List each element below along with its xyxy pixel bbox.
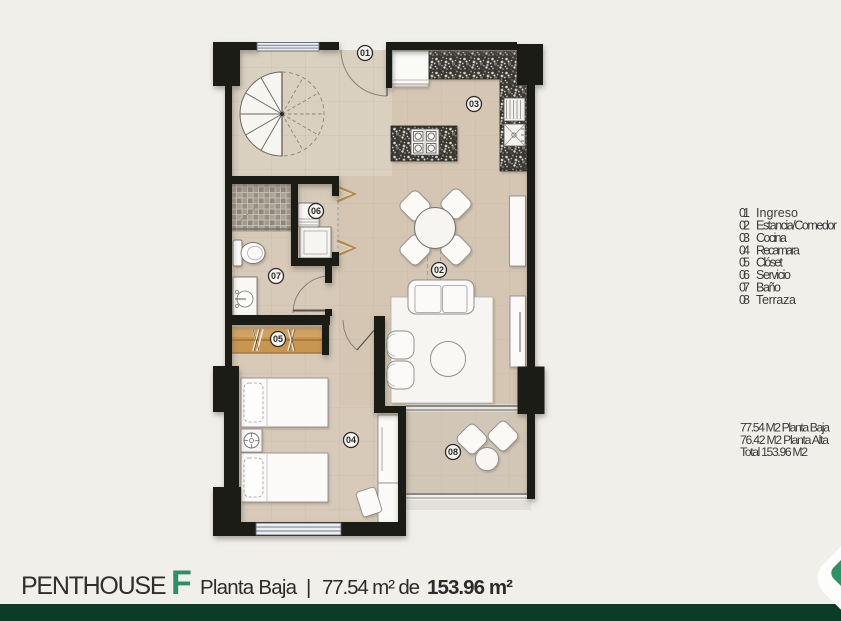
svg-text:08: 08 (448, 447, 458, 457)
svg-text:Planta Baja: Planta Baja (200, 576, 298, 599)
svg-text:F: F (171, 564, 192, 602)
svg-text:03: 03 (469, 99, 479, 109)
svg-text:77.54 m² de: 77.54 m² de (322, 576, 420, 599)
svg-text:PENTHOUSE: PENTHOUSE (21, 572, 167, 600)
svg-text:05: 05 (273, 334, 283, 344)
svg-text:|: | (306, 576, 311, 599)
svg-text:06: 06 (311, 206, 321, 216)
svg-text:07: 07 (271, 271, 281, 281)
svg-text:02: 02 (434, 265, 444, 275)
svg-text:Terraza: Terraza (756, 293, 796, 307)
svg-text:01: 01 (360, 48, 370, 58)
svg-text:04: 04 (346, 435, 356, 445)
svg-text:153.96 m²: 153.96 m² (427, 576, 513, 599)
svg-text:Total 153.96 M2: Total 153.96 M2 (740, 445, 808, 459)
svg-text:08: 08 (739, 293, 750, 307)
